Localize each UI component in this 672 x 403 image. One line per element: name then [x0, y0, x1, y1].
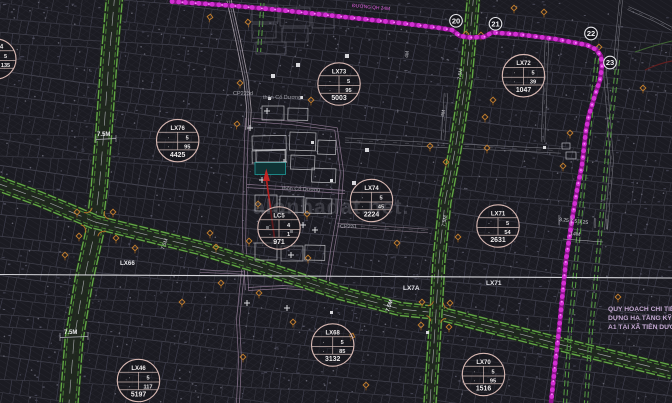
svg-text:·: · [329, 87, 331, 94]
svg-text:CP231: CP231 [340, 224, 357, 230]
svg-text:LX72: LX72 [516, 61, 531, 67]
svg-text:LX76: LX76 [171, 126, 186, 132]
svg-text:1047: 1047 [516, 87, 531, 94]
svg-text:22: 22 [587, 29, 595, 38]
svg-text:·: · [513, 79, 515, 86]
svg-text:alonhadat.net.: alonhadat.net. [253, 196, 409, 219]
svg-text:·: · [168, 143, 170, 150]
svg-text:·: · [488, 229, 490, 236]
svg-text:LX74: LX74 [364, 186, 379, 192]
svg-text:5: 5 [491, 369, 494, 375]
svg-text:·: · [473, 377, 475, 384]
svg-text:·: · [329, 78, 331, 85]
svg-text:23: 23 [606, 58, 614, 67]
svg-text:LX68: LX68 [326, 331, 341, 337]
svg-text:7.5M: 7.5M [64, 330, 77, 336]
svg-text:3132: 3132 [325, 356, 340, 363]
svg-text:5: 5 [341, 340, 344, 346]
svg-text:LX7A: LX7A [403, 285, 420, 292]
svg-text:·: · [128, 383, 130, 390]
svg-text:·: · [488, 220, 490, 227]
svg-text:4M: 4M [440, 109, 447, 117]
svg-text:5: 5 [531, 71, 534, 77]
svg-text:LX73: LX73 [332, 70, 347, 76]
svg-text:LX46: LX46 [131, 366, 146, 372]
svg-text:5: 5 [186, 135, 189, 141]
svg-text:95: 95 [184, 144, 190, 150]
svg-text:971: 971 [273, 239, 285, 246]
svg-text:1: 1 [287, 232, 290, 238]
svg-text:54: 54 [504, 230, 511, 236]
svg-text:LX66: LX66 [120, 260, 135, 267]
svg-text:5003: 5003 [331, 95, 346, 102]
svg-text:4425: 4425 [170, 152, 185, 159]
svg-text:14M: 14M [570, 231, 581, 238]
svg-text:95: 95 [345, 88, 351, 94]
svg-text:·: · [323, 339, 325, 346]
svg-text:5: 5 [347, 79, 350, 85]
svg-text:20: 20 [452, 17, 460, 26]
svg-text:thôn Cổ Dương: thôn Cổ Dương [282, 185, 320, 193]
svg-text:21: 21 [491, 20, 499, 29]
svg-text:7.5M: 7.5M [97, 132, 110, 138]
svg-text:LX71: LX71 [491, 212, 506, 218]
svg-text:CP223d: CP223d [233, 91, 253, 97]
svg-text:5: 5 [4, 54, 7, 60]
svg-text:LX70: LX70 [476, 360, 491, 366]
svg-text:2631: 2631 [490, 237, 505, 244]
svg-text:·: · [128, 374, 130, 381]
svg-text:85: 85 [339, 349, 345, 355]
svg-text:thôn Cổ Dương: thôn Cổ Dương [263, 94, 301, 101]
svg-text:5: 5 [146, 375, 149, 381]
svg-text:·: · [513, 70, 515, 77]
svg-text:·: · [269, 222, 271, 229]
svg-text:135: 135 [1, 63, 10, 69]
svg-text:A1 TẠI XÃ TIÊN DƯƠ: A1 TẠI XÃ TIÊN DƯƠ [608, 322, 672, 331]
svg-text:·: · [473, 368, 475, 375]
svg-text:5197: 5197 [131, 392, 146, 399]
svg-text:4M: 4M [404, 51, 411, 59]
svg-text:·: · [323, 348, 325, 355]
svg-text:95: 95 [490, 378, 496, 384]
svg-text:39: 39 [530, 80, 536, 86]
svg-text:·: · [168, 134, 170, 141]
svg-text:117: 117 [143, 384, 152, 390]
svg-text:LX71: LX71 [486, 280, 502, 287]
svg-text:·: · [269, 231, 271, 238]
svg-text:5: 5 [506, 221, 509, 227]
svg-text:1516: 1516 [476, 386, 491, 393]
